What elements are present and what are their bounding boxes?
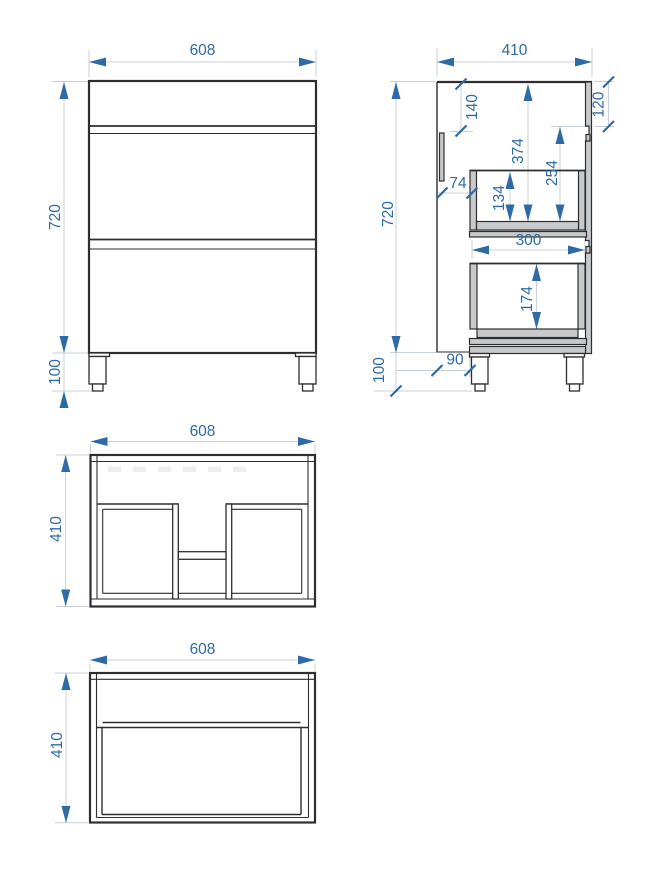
side-groove-offset-label: 254 [544, 160, 561, 186]
plan-right-partition [226, 504, 232, 599]
drawing-canvas: 608 720 100 [0, 0, 655, 888]
front-leg-height-label: 100 [47, 359, 64, 385]
side-front-panel [586, 82, 592, 354]
side-right-leg [564, 354, 585, 392]
plan-depth-label: 410 [48, 516, 65, 542]
bottom-depth-label: 410 [49, 732, 66, 758]
plan-left-partition [173, 504, 179, 599]
bottom-width-label: 608 [190, 641, 216, 658]
technical-drawing-page: 608 720 100 [0, 0, 655, 888]
front-cabinet-outline [89, 81, 316, 353]
side-drawer2-depth-label: 300 [516, 232, 542, 249]
bottom-outline [90, 673, 315, 823]
side-groove2-hook [586, 247, 590, 254]
front-left-leg [89, 353, 110, 391]
front-width-label: 608 [190, 42, 216, 59]
side-depth-label: 410 [502, 42, 528, 59]
plan-view: 608 410 [48, 423, 315, 607]
bottom-view: 608 410 [49, 641, 315, 823]
side-left-leg [470, 354, 490, 392]
side-top-front-label: 120 [591, 91, 608, 117]
side-bottom-panel [470, 347, 586, 354]
side-groove1-hook [586, 135, 590, 142]
plan-width-label: 608 [190, 423, 216, 440]
side-back-rail [440, 133, 445, 181]
plan-outline [91, 455, 316, 607]
front-height-label: 720 [47, 204, 64, 230]
plan-center-bridge [178, 552, 226, 560]
side-back-top-offset-label: 140 [464, 94, 481, 120]
side-drawer1-inner-label: 134 [491, 185, 508, 211]
side-back-gap-label: 74 [449, 175, 467, 192]
front-right-leg [296, 353, 317, 391]
side-view: 410 720 100 140 374 254 134 120 74 300 1… [371, 42, 614, 397]
front-view: 608 720 100 [47, 42, 316, 408]
side-height-label: 720 [380, 201, 397, 227]
side-drawer1-depth-label: 374 [510, 138, 527, 164]
side-drawer2-inner-label: 174 [519, 286, 536, 312]
side-bottom-offset-label: 90 [446, 352, 464, 369]
side-leg-height-label: 100 [371, 357, 388, 383]
